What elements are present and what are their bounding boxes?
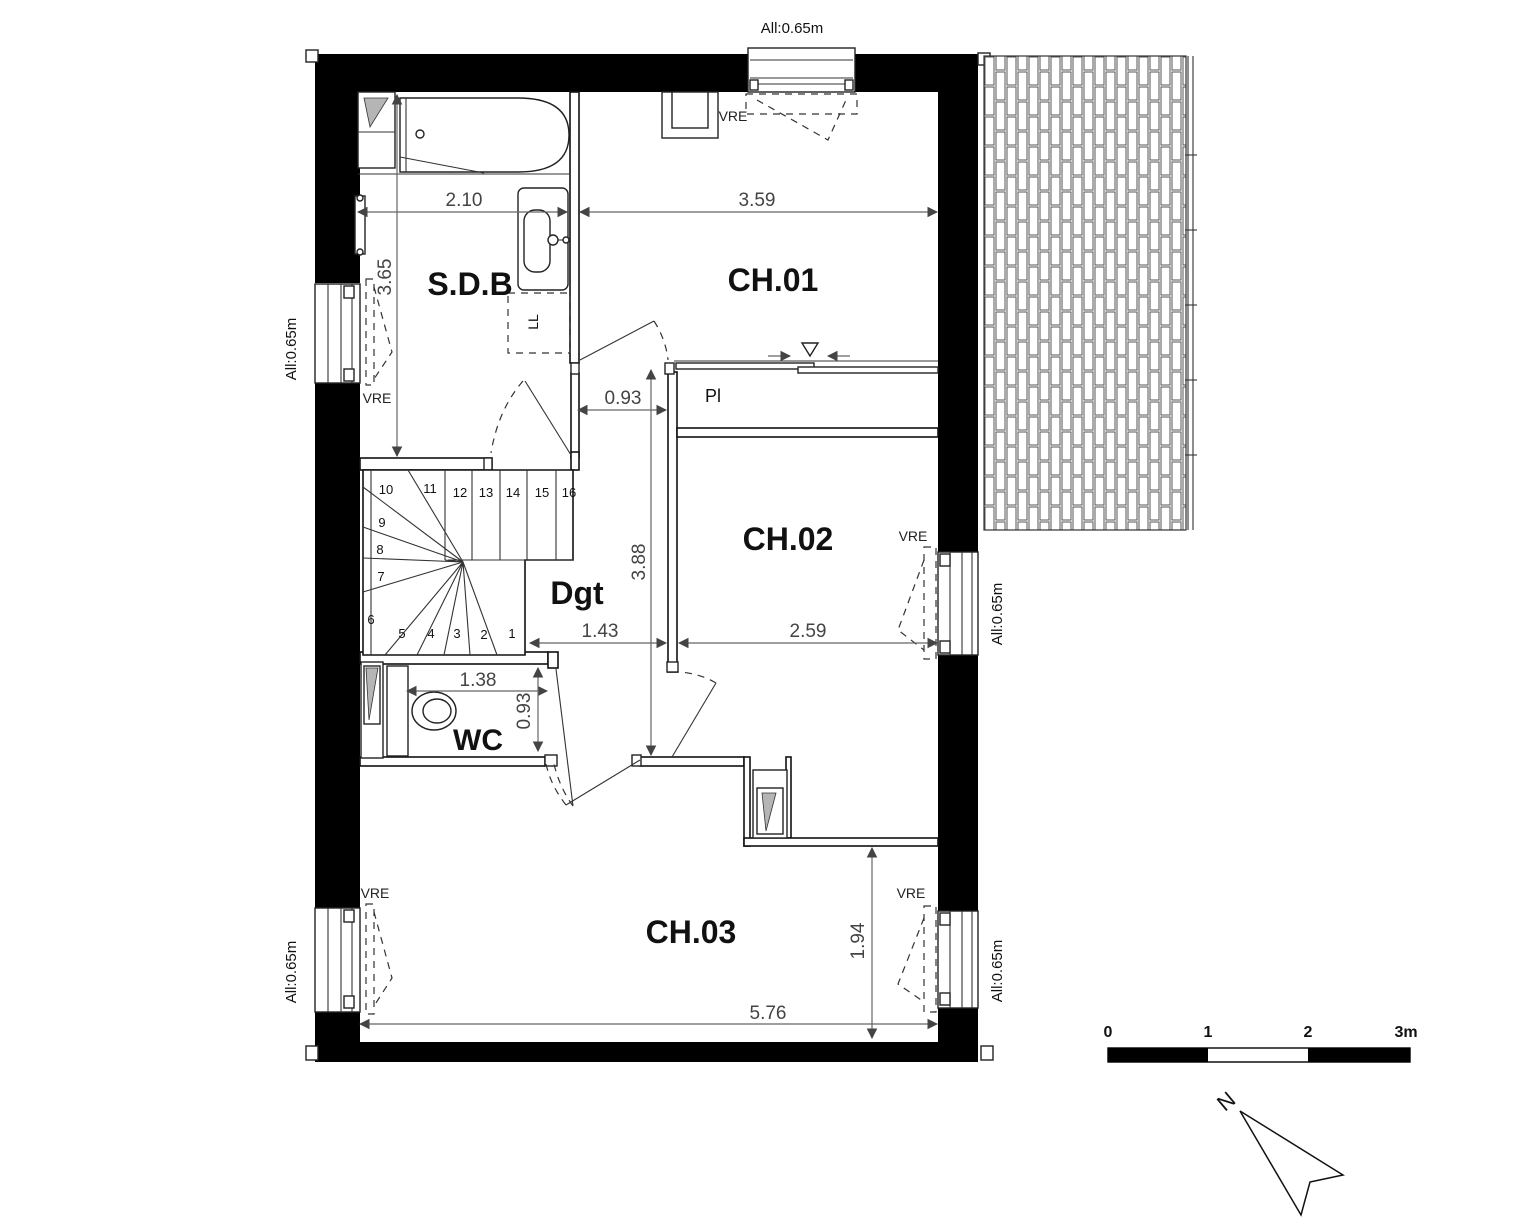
dim-2-10: 2.10 [446,190,483,211]
scale-0: 0 [1104,1024,1113,1041]
stair-step-8: 8 [376,542,383,557]
door-ch02 [672,672,716,757]
window-ch03-left [315,904,392,1014]
vre-sdb: VRE [363,390,392,406]
wc-fixtures [361,662,456,758]
sill-label-right-ch02: All:0.65m [989,583,1006,646]
dim-3-88: 3.88 [629,544,650,581]
radiator-sdb [355,195,365,255]
sill-label-right-ch03: All:0.65m [989,940,1006,1003]
door-sdb [491,381,571,455]
door-wc [553,669,573,806]
dim-5-76: 5.76 [750,1003,787,1024]
closet-label-pl: Pl [705,386,721,406]
vre-ch03-left: VRE [361,885,390,901]
bathroom-fixtures [355,92,570,353]
room-label-ch02: CH.02 [743,521,834,557]
dim-1-43: 1.43 [582,621,619,642]
stair-step-12: 12 [453,485,467,500]
duct-wc [361,662,383,758]
dim-1-38: 1.38 [460,670,497,691]
stair-step-3: 3 [453,626,460,641]
sill-label-left-upper: All:0.65m [283,318,300,381]
room-label-dgt: Dgt [550,575,604,611]
room-label-sdb: S.D.B [427,266,512,302]
sill-label-left-lower: All:0.65m [283,941,300,1004]
scale-2: 2 [1304,1024,1313,1041]
vre-ch03-right: VRE [897,885,926,901]
room-label-wc: WC [453,724,503,757]
sill-label-top: All:0.65m [761,20,824,37]
closet-sliding-door [674,343,938,373]
door-ch01 [580,321,668,360]
stair-step-4: 4 [427,626,434,641]
dim-2-59: 2.59 [790,621,827,642]
stair-step-13: 13 [479,485,493,500]
stair-step-7: 7 [377,569,384,584]
dim-0-93-wc: 0.93 [514,693,535,730]
north-label: N [1212,1087,1240,1116]
floor-plan-page: S.D.BCH.01CH.02CH.03DgtWCPlLL2.103.590.9… [0,0,1528,1232]
stair-step-10: 10 [379,482,393,497]
stair-step-14: 14 [506,485,520,500]
stair-step-5: 5 [398,626,405,641]
scale-bar [1108,1048,1410,1062]
dim-3-65: 3.65 [375,259,396,296]
window-ch03-right [898,906,978,1012]
window-ch01-top [746,48,857,140]
vre-ch02: VRE [899,528,928,544]
slide-direction-marker [802,343,818,356]
dim-1-94: 1.94 [848,922,869,959]
room-label-ch03: CH.03 [646,914,737,950]
room-label-ch01: CH.01 [728,262,819,298]
stair-step-16: 16 [562,485,576,500]
scale-3m: 3m [1394,1024,1417,1041]
sink-vanity [518,188,569,290]
stair-step-11: 11 [423,481,437,496]
appliance-label-ll: LL [525,314,541,330]
toilet [387,666,456,756]
stair-step-6: 6 [367,612,374,627]
duct-sdb [358,92,395,168]
duct-ch03 [753,770,787,838]
ch01-fixtures [662,92,718,138]
stair-step-2: 2 [480,627,487,642]
north-arrow [1240,1111,1343,1215]
stair-step-15: 15 [535,485,549,500]
window-ch02-right [898,547,978,659]
dim-0-93-top: 0.93 [605,388,642,409]
roof-hatch [984,56,1197,530]
stair-step-9: 9 [378,515,385,530]
floor-plan: S.D.BCH.01CH.02CH.03DgtWCPlLL2.103.590.9… [0,0,1528,1232]
stair-step-1: 1 [508,626,515,641]
dim-3-59: 3.59 [739,190,776,211]
vre-ch01: VRE [719,108,748,124]
scale-1: 1 [1204,1024,1213,1041]
